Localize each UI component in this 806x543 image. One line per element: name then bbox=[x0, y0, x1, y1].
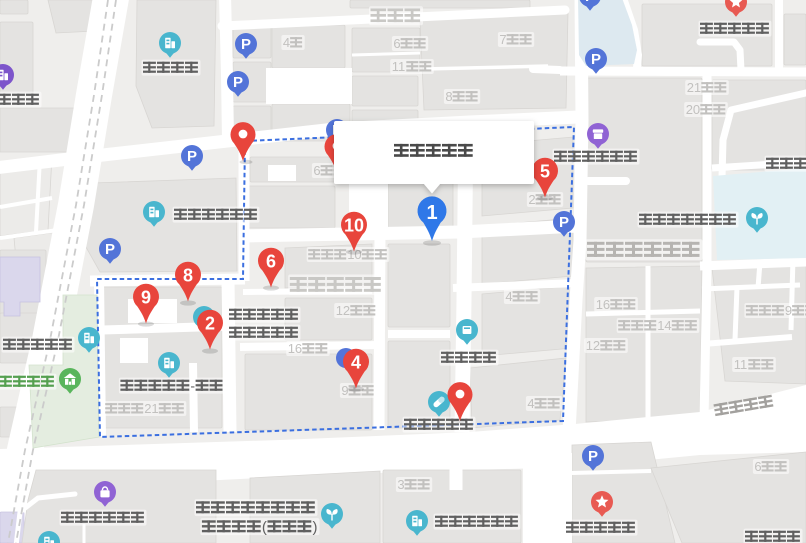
svg-text:6: 6 bbox=[393, 36, 400, 51]
svg-text:-: - bbox=[190, 378, 195, 394]
svg-text:P: P bbox=[187, 148, 197, 165]
svg-text:P: P bbox=[591, 51, 601, 68]
svg-text:14: 14 bbox=[657, 318, 671, 333]
svg-text:8: 8 bbox=[445, 89, 452, 104]
svg-text:9: 9 bbox=[785, 303, 792, 318]
svg-text:9: 9 bbox=[141, 288, 151, 308]
svg-text:20: 20 bbox=[686, 102, 700, 117]
svg-text:4: 4 bbox=[351, 353, 361, 373]
svg-text:7: 7 bbox=[499, 32, 506, 47]
svg-text:21: 21 bbox=[687, 80, 701, 95]
svg-text:4: 4 bbox=[527, 396, 534, 411]
svg-text:12: 12 bbox=[586, 338, 600, 353]
svg-text:6: 6 bbox=[754, 459, 761, 474]
svg-text:P: P bbox=[588, 448, 598, 465]
svg-text:5: 5 bbox=[540, 162, 550, 182]
svg-text:6: 6 bbox=[266, 252, 276, 272]
svg-text:P: P bbox=[233, 74, 243, 91]
svg-text:1: 1 bbox=[426, 202, 437, 224]
svg-text:11: 11 bbox=[392, 59, 406, 74]
svg-text:2: 2 bbox=[528, 192, 535, 207]
svg-text:11: 11 bbox=[734, 357, 748, 372]
svg-text:P: P bbox=[585, 0, 595, 5]
svg-text:12: 12 bbox=[336, 303, 350, 318]
svg-text:10: 10 bbox=[344, 216, 364, 236]
svg-text:): ) bbox=[313, 519, 318, 536]
svg-text:4: 4 bbox=[283, 35, 290, 50]
svg-text:P: P bbox=[559, 214, 569, 231]
svg-text:2: 2 bbox=[205, 314, 215, 334]
svg-text:(: ( bbox=[262, 519, 267, 536]
svg-text:8: 8 bbox=[183, 266, 193, 286]
svg-text:21: 21 bbox=[144, 401, 158, 416]
svg-text:16: 16 bbox=[596, 297, 610, 312]
svg-text:16: 16 bbox=[288, 341, 302, 356]
svg-text:6: 6 bbox=[313, 163, 320, 178]
svg-text:P: P bbox=[241, 36, 251, 53]
svg-text:4: 4 bbox=[505, 289, 512, 304]
svg-text:3: 3 bbox=[397, 477, 404, 492]
svg-text:P: P bbox=[105, 241, 115, 258]
svg-text:9: 9 bbox=[341, 383, 348, 398]
